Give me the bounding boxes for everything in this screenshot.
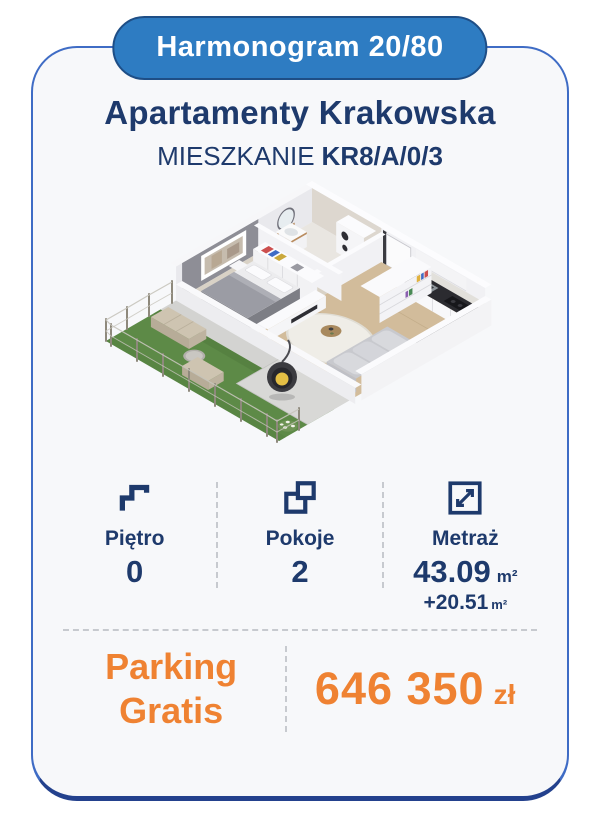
page-title: Apartamenty Krakowska <box>33 94 567 132</box>
price-currency: zł <box>494 679 516 710</box>
stat-area-label: Metraż <box>384 527 547 551</box>
price-box: 646 350zł <box>287 663 543 715</box>
stat-area: Metraż 43.09m² +20.51m² <box>384 476 547 615</box>
schedule-badge: Harmonogram 20/80 <box>112 16 487 80</box>
unit-code: KR8/A/0/3 <box>322 141 443 171</box>
stat-floor-label: Piętro <box>53 527 216 551</box>
subtitle-prefix: MIESZKANIE <box>157 141 314 171</box>
parking-promo: Parking Gratis <box>57 645 285 733</box>
stat-floor: Piętro 0 <box>53 476 216 590</box>
area-icon <box>384 476 547 518</box>
floor-plan-image <box>100 176 500 476</box>
stat-rooms-label: Pokoje <box>218 527 381 551</box>
stat-area-value: 43.09m² <box>384 554 547 590</box>
stat-area-extra: +20.51m² <box>384 591 547 615</box>
rooms-icon <box>218 476 381 518</box>
apartment-card: Apartamenty Krakowska MIESZKANIEKR8/A/0/… <box>31 46 569 801</box>
parking-promo-line1: Parking <box>57 645 285 689</box>
parking-promo-line2: Gratis <box>57 689 285 733</box>
stat-rooms: Pokoje 2 <box>218 476 381 590</box>
floor-plan-container <box>33 176 567 476</box>
stats-row: Piętro 0 Pokoje 2 Metraż <box>53 476 547 615</box>
page: { "badge": { "label": "Harmonogram 20/80… <box>0 0 600 814</box>
stairs-icon <box>53 476 216 518</box>
dashed-divider <box>63 629 537 631</box>
price-value: 646 350 <box>315 663 485 714</box>
stat-rooms-value: 2 <box>218 554 381 590</box>
stat-floor-value: 0 <box>53 554 216 590</box>
offer-row: Parking Gratis 646 350zł <box>57 645 543 733</box>
apartment-subtitle: MIESZKANIEKR8/A/0/3 <box>33 141 567 172</box>
